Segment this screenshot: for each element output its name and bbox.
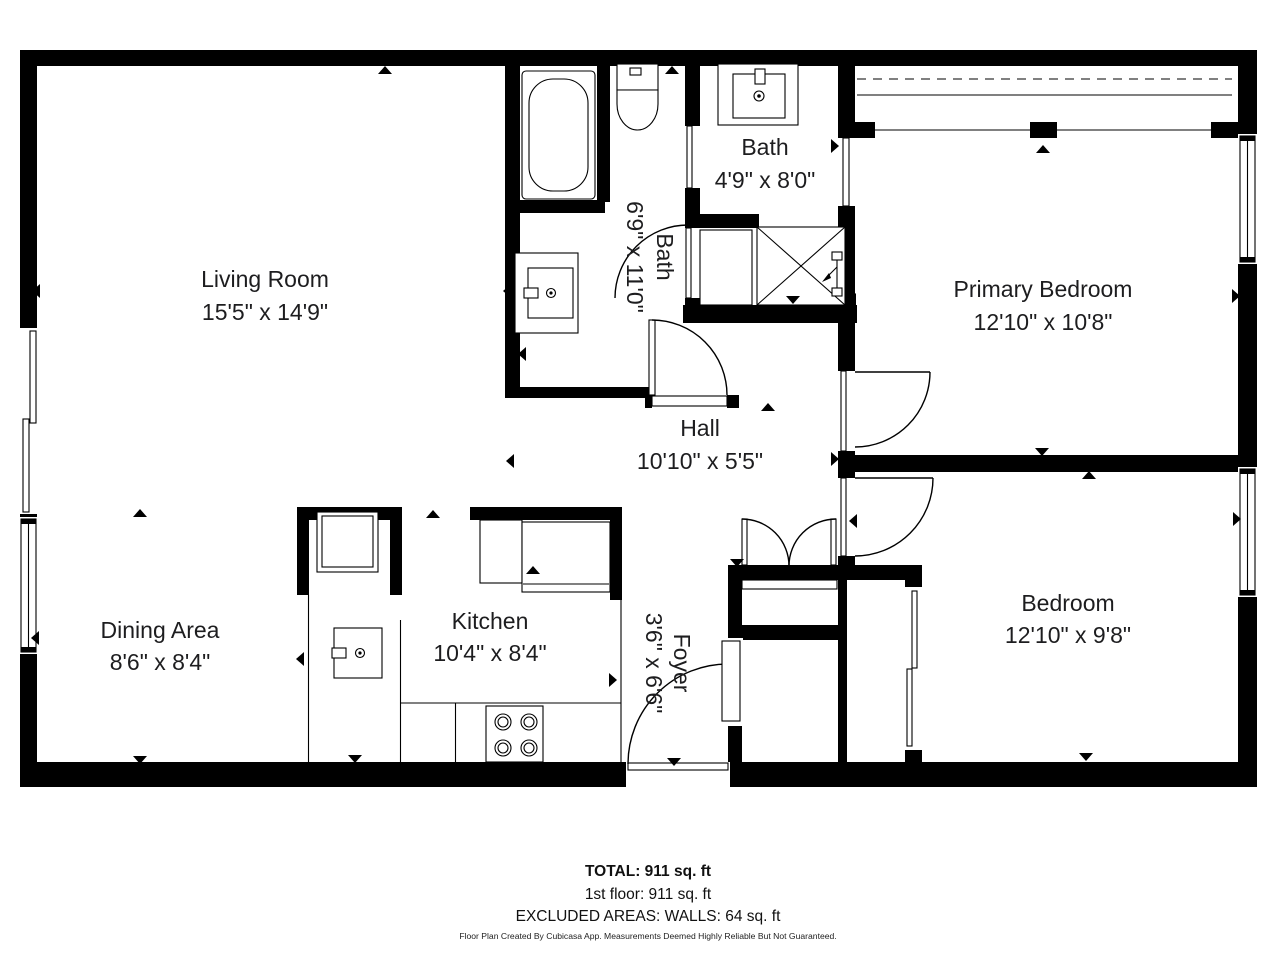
- room-dims-dining-area: 8'6" x 8'4": [110, 649, 211, 675]
- primary-bedroom-door: [838, 371, 930, 451]
- room-label-group-bath-main: Bath 6'9" x 11'0": [622, 201, 678, 313]
- sliding-door: [20, 328, 37, 514]
- room-label-living-room: Living Room: [201, 266, 329, 292]
- room-label-dining-area: Dining Area: [101, 617, 220, 643]
- bathtub: [522, 71, 595, 199]
- sliding-door: [905, 587, 922, 750]
- direction-arrows: [31, 66, 1241, 766]
- room-dims-living-room: 15'5" x 14'9": [202, 299, 328, 325]
- room-label-bath-main: Bath: [652, 233, 678, 280]
- room-dims-foyer: 3'6" x 6'6": [641, 613, 667, 714]
- floor-plan-drawing: Living Room 15'5" x 14'9" Bath 4'9" x 8'…: [0, 0, 1280, 960]
- shower-valve: [832, 288, 842, 296]
- room-label-hall: Hall: [680, 415, 720, 441]
- room-label-primary-bedroom: Primary Bedroom: [954, 276, 1133, 302]
- door-panel: [843, 138, 849, 206]
- kitchen-sink: [332, 628, 382, 678]
- bedroom-door: [838, 478, 933, 556]
- room-dims-hall: 10'10" x 5'5": [637, 448, 763, 474]
- door-swing-arc: [652, 320, 727, 395]
- first-floor-area-text: 1st floor: 911 sq. ft: [585, 886, 712, 903]
- disclaimer-text: Floor Plan Created By Cubicasa App. Meas…: [459, 931, 836, 941]
- door-panel: [686, 228, 691, 298]
- bifold-closet-doors: [742, 519, 836, 566]
- door-swing-arc: [855, 478, 933, 556]
- room-dims-primary-bedroom: 12'10" x 10'8": [974, 309, 1113, 335]
- shower: [757, 227, 845, 305]
- room-dims-kitchen: 10'4" x 8'4": [433, 640, 546, 666]
- door-panel: [649, 320, 655, 395]
- room-label-bedroom: Bedroom: [1021, 590, 1114, 616]
- total-area-text: TOTAL: 911 sq. ft: [585, 863, 711, 880]
- window: [20, 517, 37, 654]
- bathroom-sink: [515, 253, 578, 333]
- stove: [486, 706, 543, 762]
- door-threshold: [652, 396, 727, 406]
- shower-valve: [832, 252, 842, 260]
- closet-shelf: [742, 580, 837, 589]
- room-dims-bath-small: 4'9" x 8'0": [715, 167, 816, 193]
- walls: [20, 50, 1257, 787]
- room-label-bath-small: Bath: [741, 134, 788, 160]
- room-dims-bedroom: 12'10" x 9'8": [1005, 622, 1131, 648]
- summary-footer: TOTAL: 911 sq. ft 1st floor: 911 sq. ft …: [459, 863, 836, 941]
- refrigerator-counter: [480, 520, 610, 592]
- room-label-kitchen: Kitchen: [452, 608, 529, 634]
- excluded-areas-text: EXCLUDED AREAS: WALLS: 64 sq. ft: [516, 908, 781, 925]
- room-labels: Living Room 15'5" x 14'9" Bath 4'9" x 8'…: [101, 134, 1133, 713]
- door-swing-arc: [855, 372, 930, 447]
- window: [1238, 134, 1257, 264]
- room-label-group-foyer: Foyer 3'6" x 6'6": [641, 613, 695, 714]
- bathroom-sink: [718, 64, 798, 125]
- room-dims-bath-main: 6'9" x 11'0": [622, 201, 648, 313]
- toilet: [617, 64, 658, 130]
- window: [1238, 467, 1257, 597]
- linen-closet: [700, 230, 752, 305]
- washer: [317, 512, 378, 572]
- room-label-foyer: Foyer: [669, 634, 695, 693]
- foyer-closet-door: [722, 638, 743, 726]
- door-panel: [687, 126, 692, 188]
- floor-plan-page: Living Room 15'5" x 14'9" Bath 4'9" x 8'…: [0, 0, 1280, 960]
